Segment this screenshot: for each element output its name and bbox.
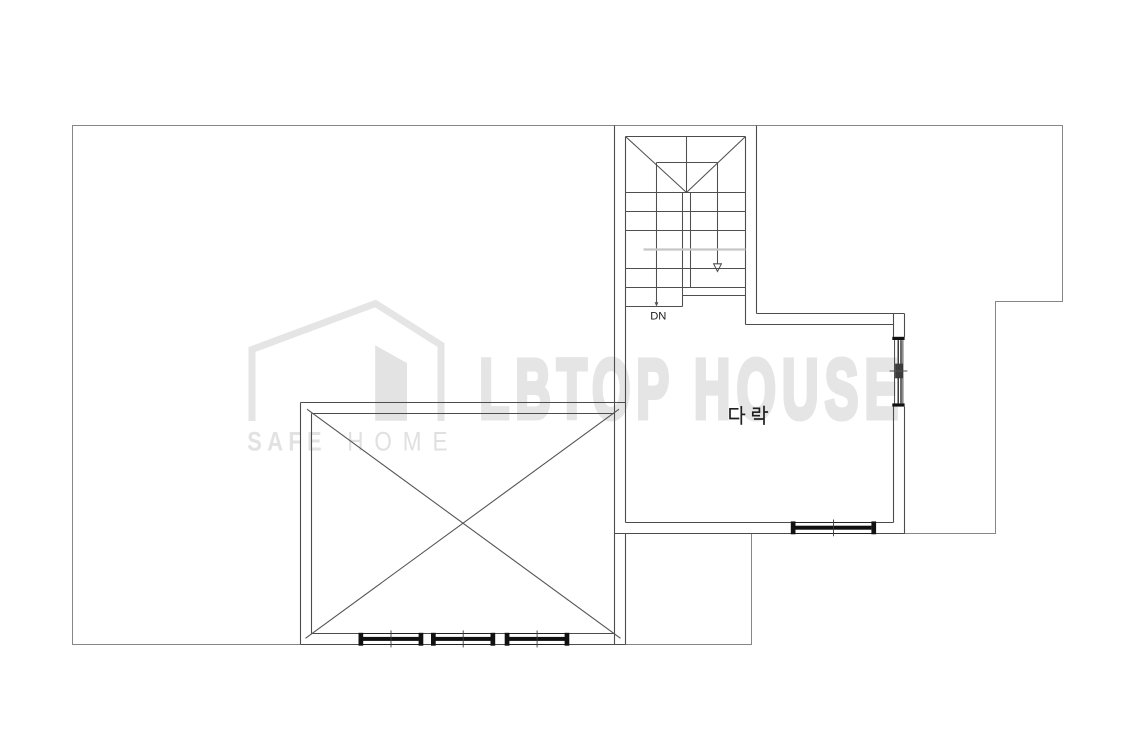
svg-text:LBTOP: LBTOP bbox=[479, 343, 675, 437]
svg-text:SAFE: SAFE bbox=[247, 427, 327, 457]
svg-text:HOUSE: HOUSE bbox=[694, 342, 905, 436]
svg-text:HOME: HOME bbox=[347, 428, 458, 457]
svg-text:DN: DN bbox=[650, 311, 666, 323]
